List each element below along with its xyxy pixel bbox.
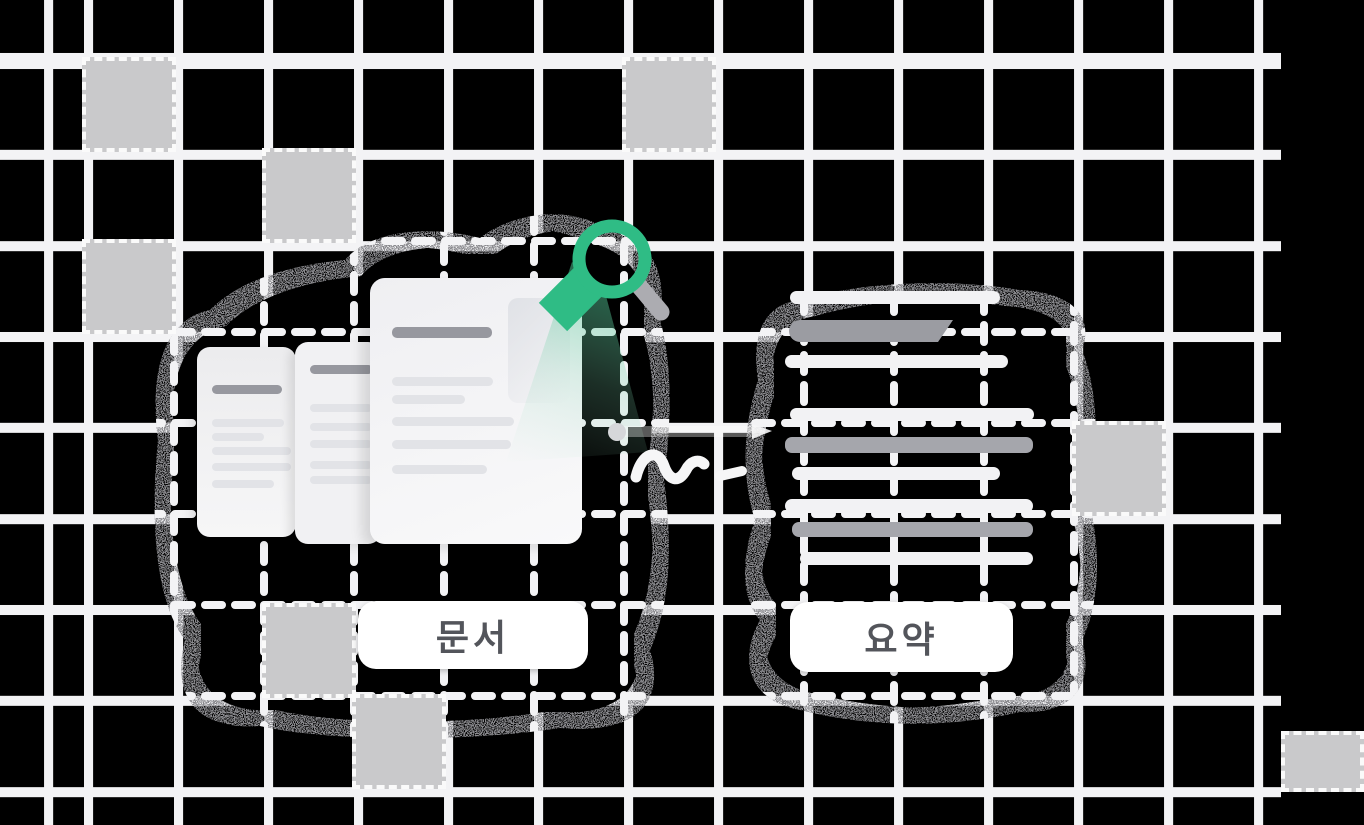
summary-line-gray bbox=[785, 437, 1033, 453]
summary-label-text: 요약 bbox=[864, 611, 938, 663]
document-label-text: 문서 bbox=[436, 609, 510, 661]
summary-line bbox=[790, 408, 1034, 421]
summary-line bbox=[785, 355, 1008, 368]
summary-line bbox=[785, 499, 1033, 513]
summary-line-gray bbox=[792, 522, 1033, 537]
illustration-canvas: 문서 요약 bbox=[0, 0, 1364, 825]
summary-highlight-line bbox=[0, 0, 1364, 825]
summary-line bbox=[800, 552, 1033, 565]
document-label-pill: 문서 bbox=[358, 601, 588, 669]
summary-line bbox=[792, 467, 1000, 480]
summary-label-pill: 요약 bbox=[790, 602, 1013, 672]
